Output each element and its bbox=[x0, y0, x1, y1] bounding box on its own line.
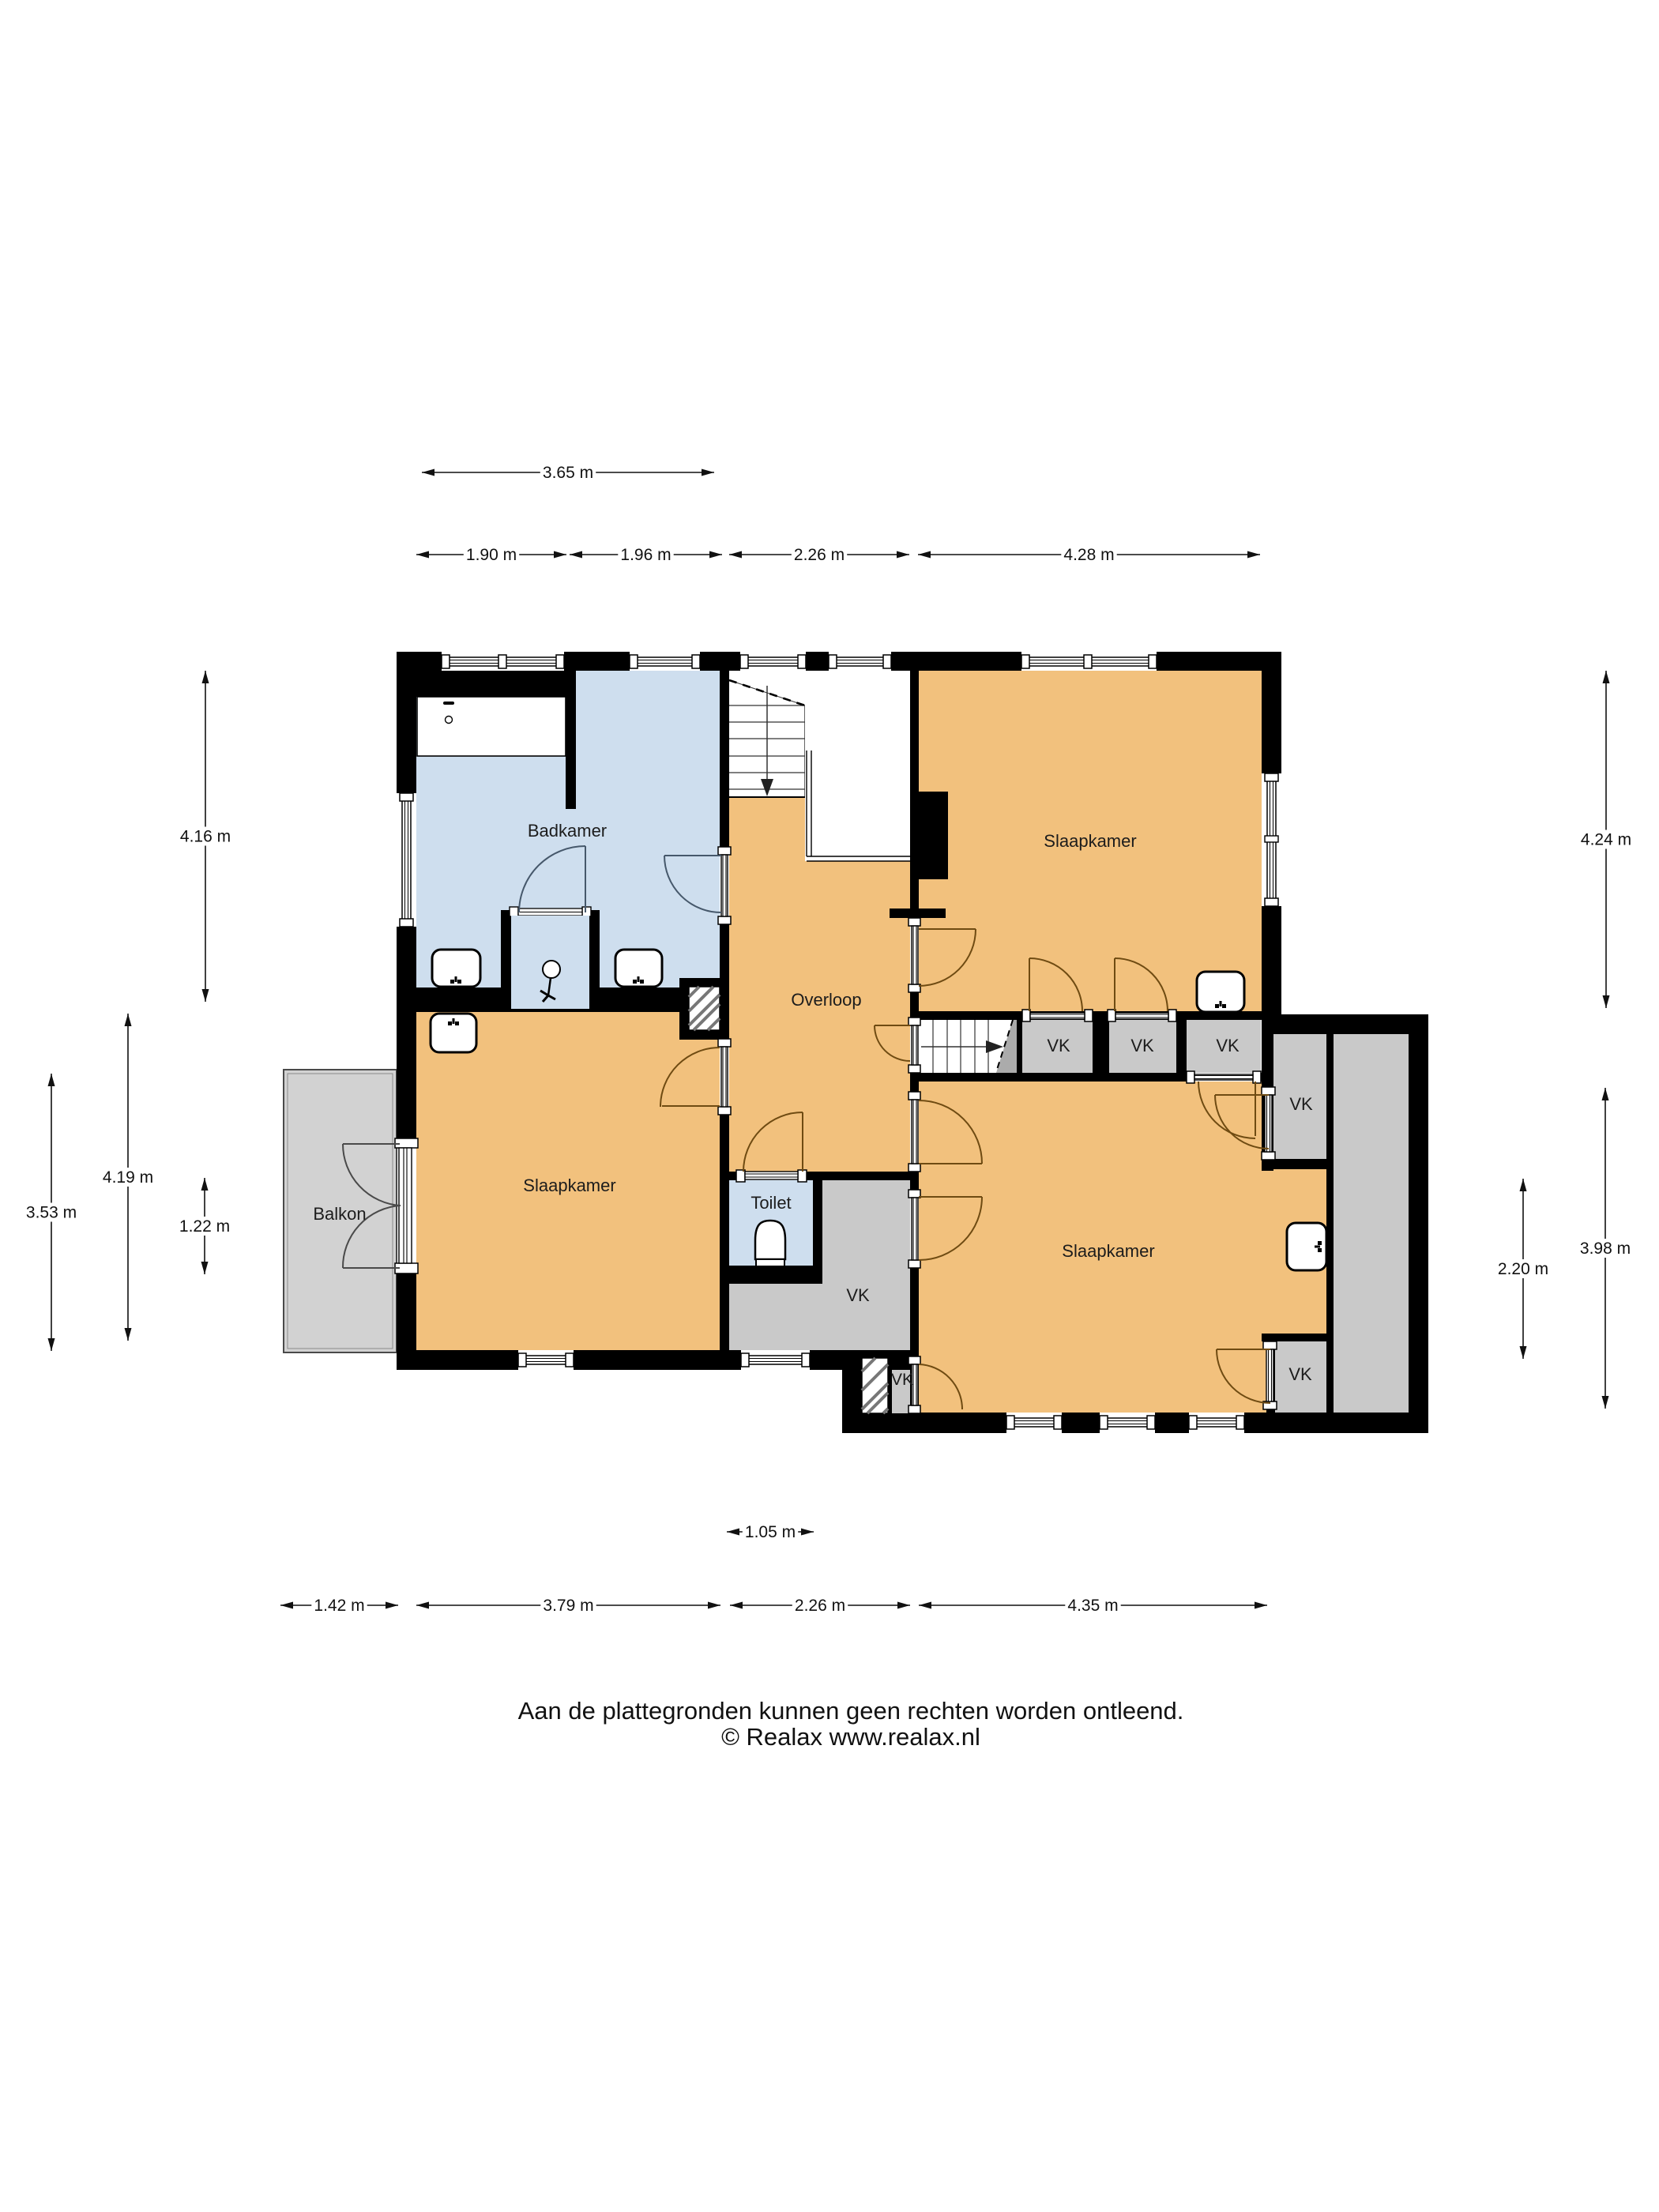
svg-text:4.16 m: 4.16 m bbox=[180, 828, 231, 846]
svg-text:Overloop: Overloop bbox=[791, 990, 861, 1010]
svg-text:Slaapkamer: Slaapkamer bbox=[523, 1176, 615, 1195]
svg-text:Slaapkamer: Slaapkamer bbox=[1062, 1241, 1154, 1261]
svg-text:4.35 m: 4.35 m bbox=[1067, 1597, 1118, 1615]
svg-text:1.96 m: 1.96 m bbox=[620, 546, 671, 564]
svg-text:Badkamer: Badkamer bbox=[528, 821, 607, 841]
svg-text:2.26 m: 2.26 m bbox=[795, 1597, 845, 1615]
svg-text:3.79 m: 3.79 m bbox=[543, 1597, 593, 1615]
svg-text:VK: VK bbox=[1216, 1036, 1240, 1055]
svg-text:3.65 m: 3.65 m bbox=[543, 464, 593, 482]
svg-text:4.19 m: 4.19 m bbox=[103, 1168, 153, 1187]
svg-text:3.98 m: 3.98 m bbox=[1580, 1240, 1631, 1258]
svg-text:Balkon: Balkon bbox=[313, 1204, 366, 1224]
svg-text:4.28 m: 4.28 m bbox=[1063, 546, 1114, 564]
svg-text:2.26 m: 2.26 m bbox=[794, 546, 845, 564]
svg-text:VK: VK bbox=[1130, 1036, 1154, 1055]
svg-text:VK: VK bbox=[1288, 1364, 1312, 1384]
svg-text:Toilet: Toilet bbox=[750, 1193, 791, 1213]
svg-text:4.24 m: 4.24 m bbox=[1581, 831, 1631, 849]
svg-text:VK: VK bbox=[846, 1285, 870, 1305]
svg-text:1.90 m: 1.90 m bbox=[466, 546, 517, 564]
svg-text:3.53 m: 3.53 m bbox=[26, 1204, 77, 1222]
svg-text:© Realax www.realax.nl: © Realax www.realax.nl bbox=[721, 1723, 980, 1751]
svg-text:1.42 m: 1.42 m bbox=[314, 1597, 364, 1615]
svg-text:Slaapkamer: Slaapkamer bbox=[1044, 831, 1136, 851]
svg-text:Aan de plattegronden kunnen ge: Aan de plattegronden kunnen geen rechten… bbox=[518, 1697, 1184, 1725]
svg-text:VK: VK bbox=[1047, 1036, 1070, 1055]
svg-text:1.22 m: 1.22 m bbox=[179, 1217, 230, 1236]
svg-text:VK: VK bbox=[891, 1371, 913, 1389]
svg-text:VK: VK bbox=[1289, 1094, 1313, 1114]
svg-text:2.20 m: 2.20 m bbox=[1498, 1260, 1548, 1278]
svg-text:1.05 m: 1.05 m bbox=[745, 1523, 796, 1541]
